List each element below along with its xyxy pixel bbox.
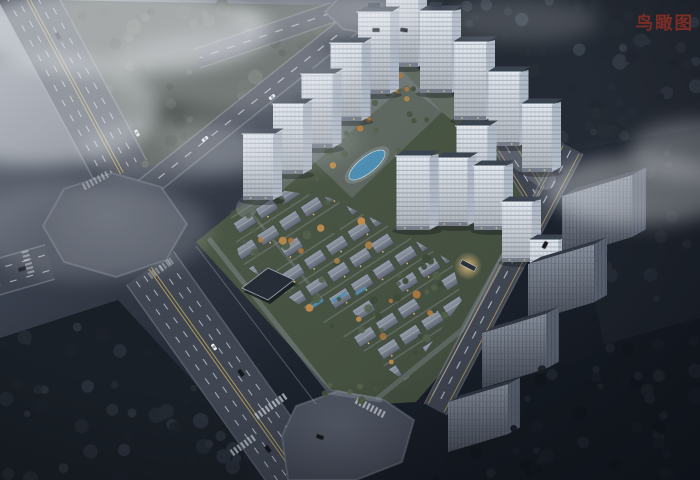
birds-eye-render: 鸟瞰图 bbox=[0, 0, 700, 480]
vignette-overlay bbox=[0, 0, 700, 480]
aerial-render-viewport: 鸟瞰图 bbox=[0, 0, 700, 480]
view-label: 鸟瞰图 bbox=[636, 13, 695, 34]
